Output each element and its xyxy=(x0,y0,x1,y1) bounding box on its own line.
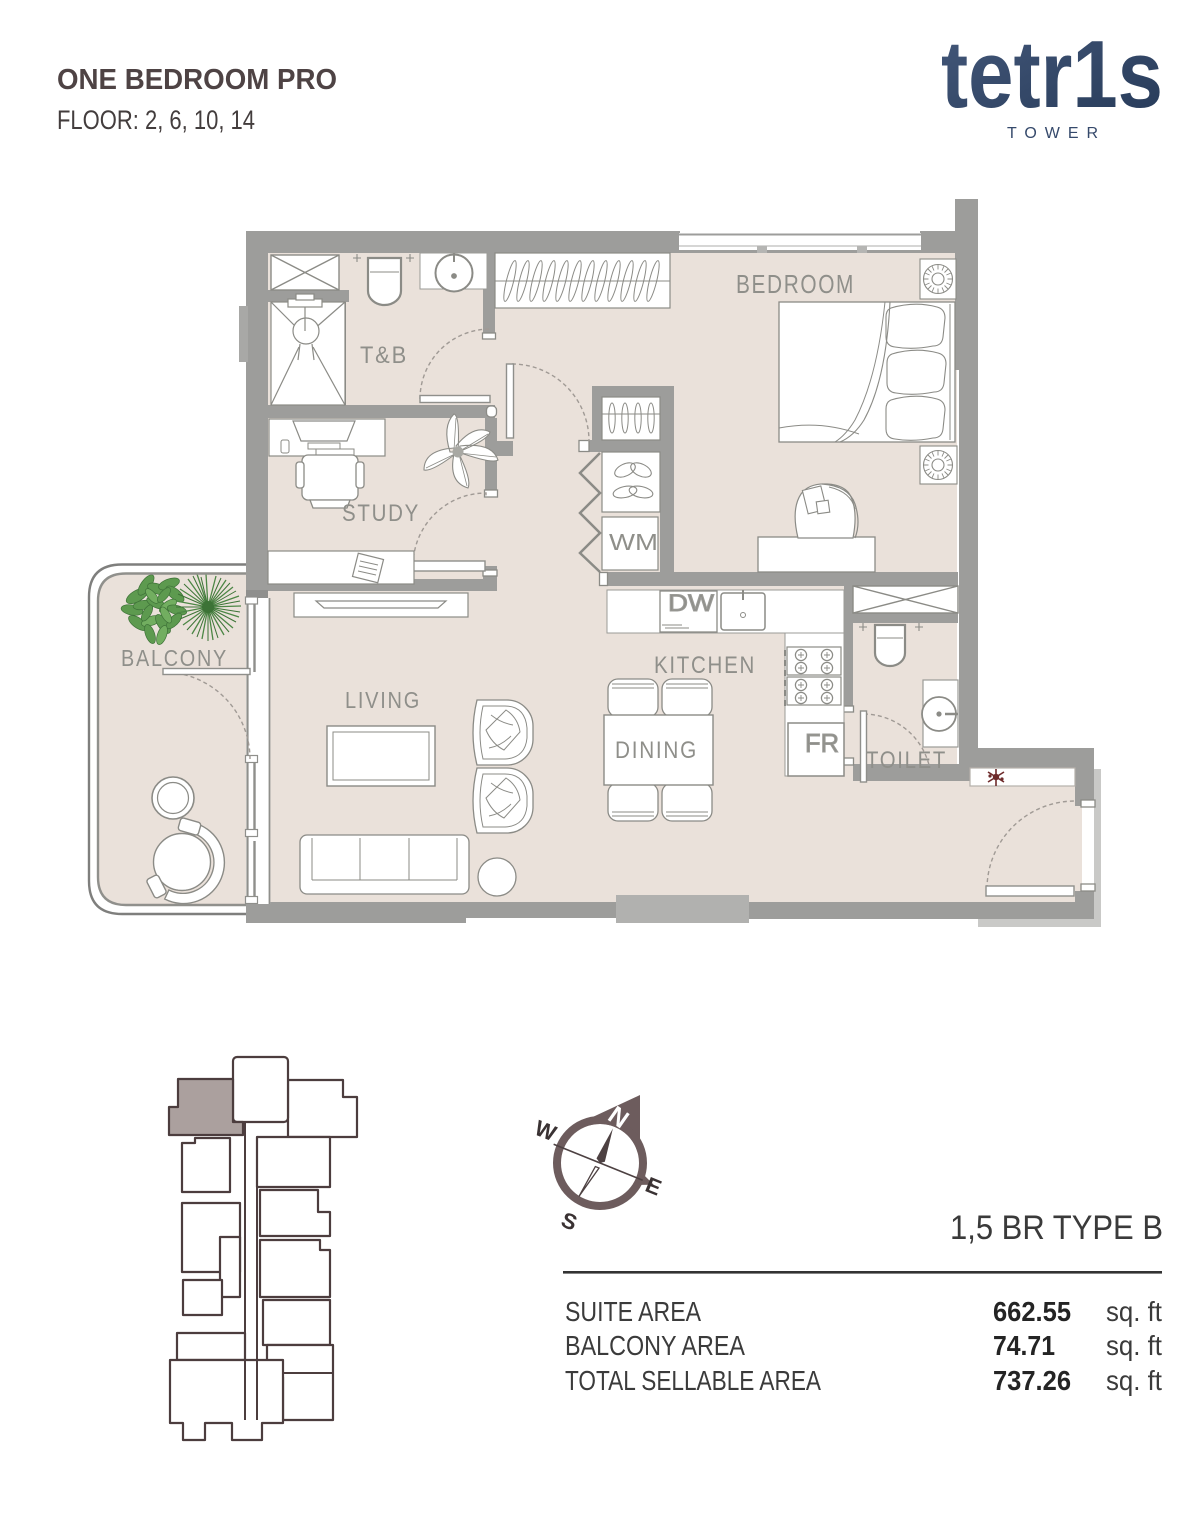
svg-text:74.71: 74.71 xyxy=(993,1330,1055,1361)
svg-text:DINING: DINING xyxy=(615,737,698,764)
svg-text:1,5 BR TYPE B: 1,5 BR TYPE B xyxy=(950,1209,1163,1247)
svg-text:FLOOR: 2, 6, 10, 14: FLOOR: 2, 6, 10, 14 xyxy=(57,105,255,135)
svg-text:ONE BEDROOM PRO: ONE BEDROOM PRO xyxy=(57,64,337,96)
svg-text:FR: FR xyxy=(805,728,839,758)
svg-text:BALCONY AREA: BALCONY AREA xyxy=(565,1330,745,1361)
svg-text:TOTAL SELLABLE AREA: TOTAL SELLABLE AREA xyxy=(565,1365,821,1396)
svg-text:WM: WM xyxy=(609,529,658,555)
svg-text:S: S xyxy=(558,1207,581,1236)
svg-text:W: W xyxy=(531,1115,560,1146)
svg-text:737.26: 737.26 xyxy=(993,1365,1071,1396)
svg-text:662.55: 662.55 xyxy=(993,1296,1071,1327)
svg-text:sq. ft: sq. ft xyxy=(1106,1330,1162,1361)
svg-text:E: E xyxy=(642,1172,665,1201)
svg-text:tetr1s: tetr1s xyxy=(941,21,1163,128)
svg-text:BEDROOM: BEDROOM xyxy=(736,269,855,299)
svg-text:STUDY: STUDY xyxy=(342,500,420,527)
svg-text:DW: DW xyxy=(668,590,714,617)
svg-text:BALCONY: BALCONY xyxy=(121,645,228,671)
svg-text:T&B: T&B xyxy=(360,342,408,369)
svg-text:LIVING: LIVING xyxy=(345,687,421,713)
svg-text:KITCHEN: KITCHEN xyxy=(654,652,756,679)
svg-text:sq. ft: sq. ft xyxy=(1106,1296,1162,1327)
svg-text:TOILET: TOILET xyxy=(866,747,947,774)
svg-text:SUITE AREA: SUITE AREA xyxy=(565,1296,701,1327)
svg-text:sq. ft: sq. ft xyxy=(1106,1365,1162,1396)
